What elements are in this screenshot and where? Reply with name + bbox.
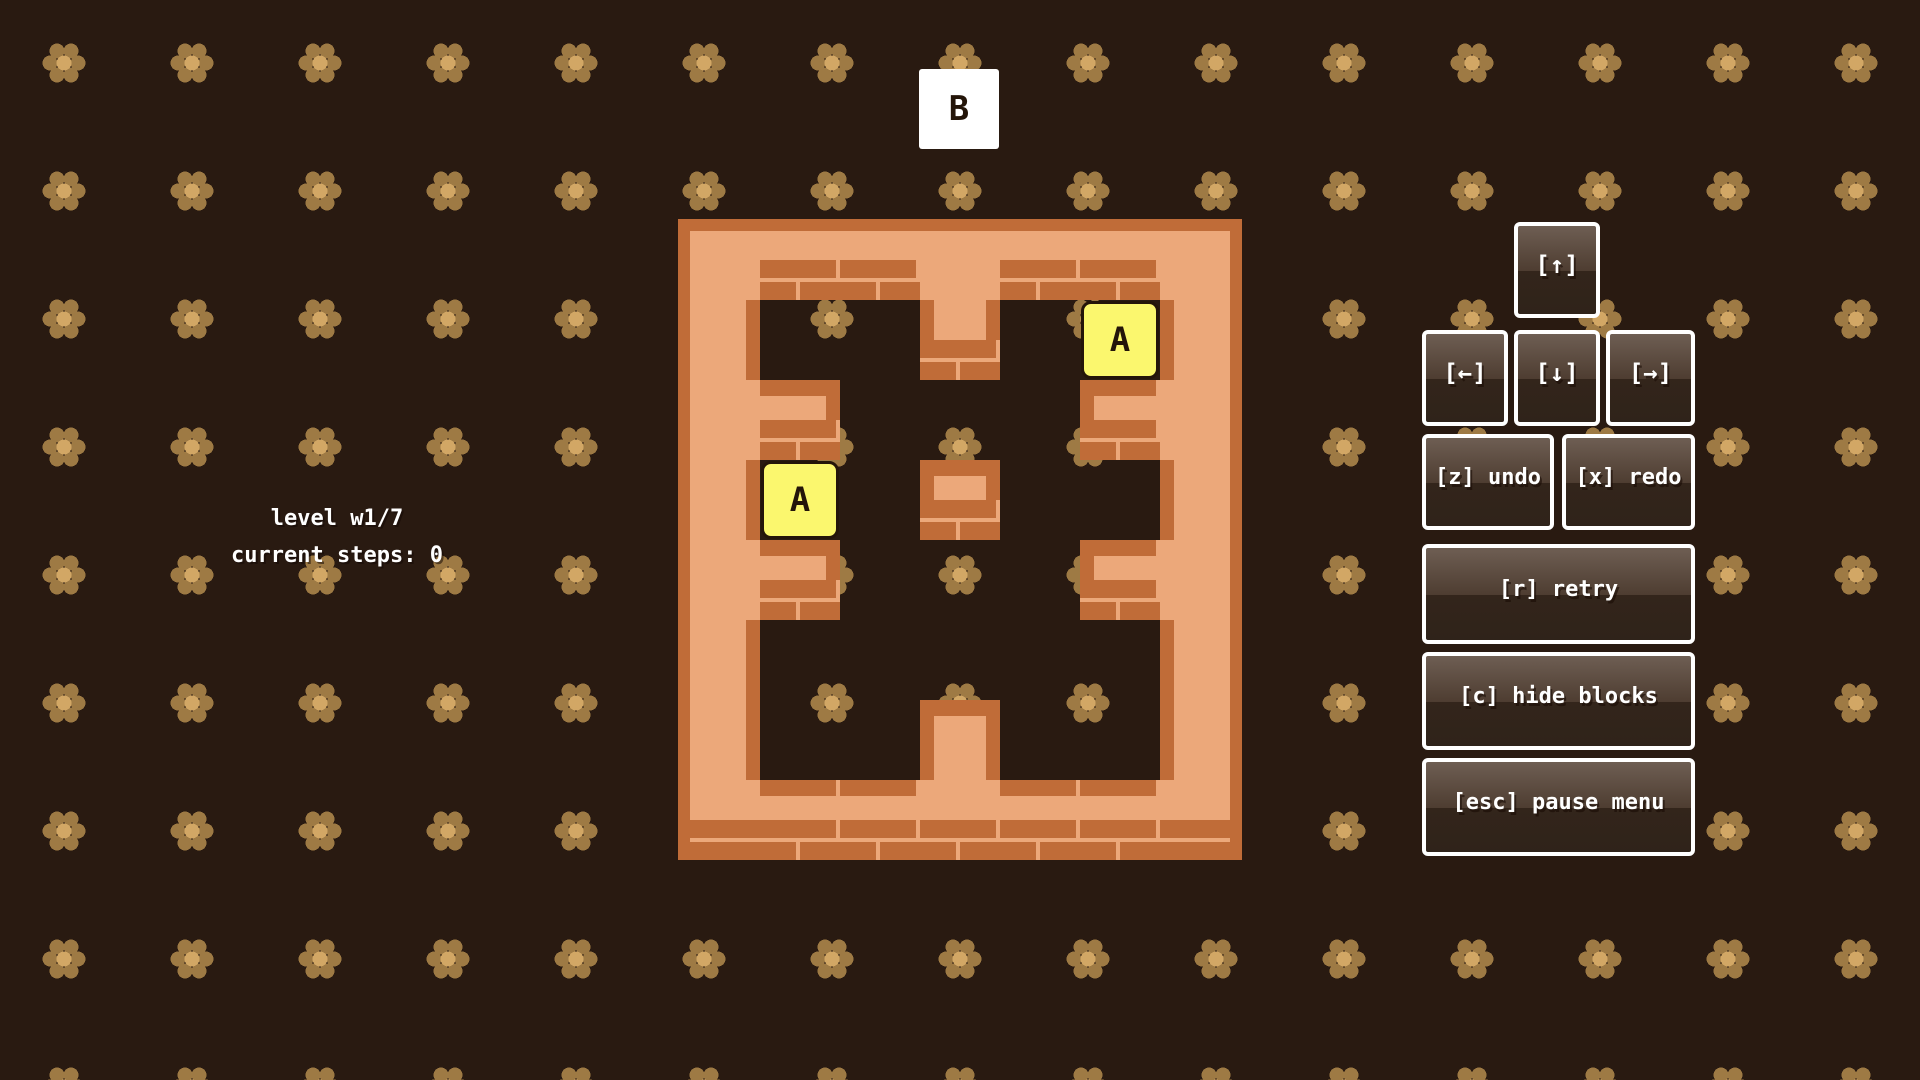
wall-tile (920, 780, 1000, 860)
wall-tile (1160, 620, 1230, 700)
floor-tile (840, 540, 920, 620)
retry-button[interactable]: [r] retry (1422, 544, 1695, 644)
floor-tile (1000, 380, 1080, 460)
floor-tile (760, 300, 840, 380)
wall-tile (1160, 231, 1230, 300)
floor-tile (1080, 700, 1160, 780)
wall-tile (690, 460, 760, 540)
button-label: [c] hide blocks (1459, 684, 1658, 709)
move-up-button[interactable]: [↑] (1514, 222, 1600, 318)
button-label: [r] retry (1499, 577, 1618, 602)
wall-tile (760, 231, 840, 300)
wall-tile (1160, 700, 1230, 780)
wall-tile (690, 300, 760, 380)
move-down-button[interactable]: [↓] (1514, 330, 1600, 426)
floor-tile (920, 540, 1000, 620)
floor-tile (840, 700, 920, 780)
floor-tile (760, 620, 840, 700)
move-right-button[interactable]: [→] (1606, 330, 1695, 426)
wall-tile (760, 780, 840, 860)
button-label: [x] redo (1576, 465, 1682, 490)
wall-tile (760, 540, 840, 620)
button-label: [z] undo (1435, 465, 1541, 490)
wall-tile (690, 540, 760, 620)
floor-tile (920, 380, 1000, 460)
floor-tile (1000, 460, 1080, 540)
floor-tile (1080, 620, 1160, 700)
block-a: A (761, 461, 839, 539)
wall-tile (920, 231, 1000, 300)
wall-tile (1080, 780, 1160, 860)
level-board: AA (678, 219, 1242, 860)
floor-tile (1000, 700, 1080, 780)
wall-tile (1080, 231, 1160, 300)
floor-tile (840, 300, 920, 380)
floor-tile (1000, 620, 1080, 700)
wall-tile (1160, 780, 1230, 860)
button-label: [↓] (1535, 359, 1578, 387)
steps-label: current steps: 0 (197, 537, 477, 574)
wall-tile (1000, 231, 1080, 300)
floor-tile (840, 460, 920, 540)
floor-tile (840, 380, 920, 460)
level-label: level w1/7 (197, 500, 477, 537)
background-pattern: { "hud": { "level_label": "level w1/7", … (0, 0, 1920, 1080)
wall-tile (1160, 380, 1230, 460)
floor-tile (760, 700, 840, 780)
floor-tile (920, 620, 1000, 700)
wall-tile (690, 620, 760, 700)
wall-tile (1160, 300, 1230, 380)
button-label: [↑] (1535, 251, 1578, 279)
game-screen: level w1/7 current steps: 0 AA B [↑] [←]… (0, 0, 1920, 1080)
floor-tile (1000, 540, 1080, 620)
button-label: [←] (1443, 359, 1486, 387)
pause-menu-button[interactable]: [esc] pause menu (1422, 758, 1695, 856)
wall-tile (840, 231, 920, 300)
wall-tile (690, 380, 760, 460)
redo-button[interactable]: [x] redo (1562, 434, 1695, 530)
wall-tile (690, 700, 760, 780)
wall-tile (1160, 460, 1230, 540)
undo-button[interactable]: [z] undo (1422, 434, 1554, 530)
wall-tile (1080, 540, 1160, 620)
wall-tile (840, 780, 920, 860)
wall-tile (920, 300, 1000, 380)
wall-tile (1000, 780, 1080, 860)
wall-tile (1080, 380, 1160, 460)
hide-blocks-button[interactable]: [c] hide blocks (1422, 652, 1695, 750)
hud: level w1/7 current steps: 0 (197, 500, 477, 574)
block-b: B (919, 69, 999, 149)
wall-tile (1160, 540, 1230, 620)
floor-tile (1000, 300, 1080, 380)
wall-tile (690, 780, 760, 860)
wall-tile (760, 380, 840, 460)
wall-tile (920, 460, 1000, 540)
move-left-button[interactable]: [←] (1422, 330, 1508, 426)
floor-tile (1080, 460, 1160, 540)
wall-tile (920, 700, 1000, 780)
floor-tile (840, 620, 920, 700)
wall-tile (690, 231, 760, 300)
button-label: [→] (1629, 359, 1672, 387)
block-a: A (1081, 301, 1159, 379)
button-label: [esc] pause menu (1453, 790, 1665, 815)
